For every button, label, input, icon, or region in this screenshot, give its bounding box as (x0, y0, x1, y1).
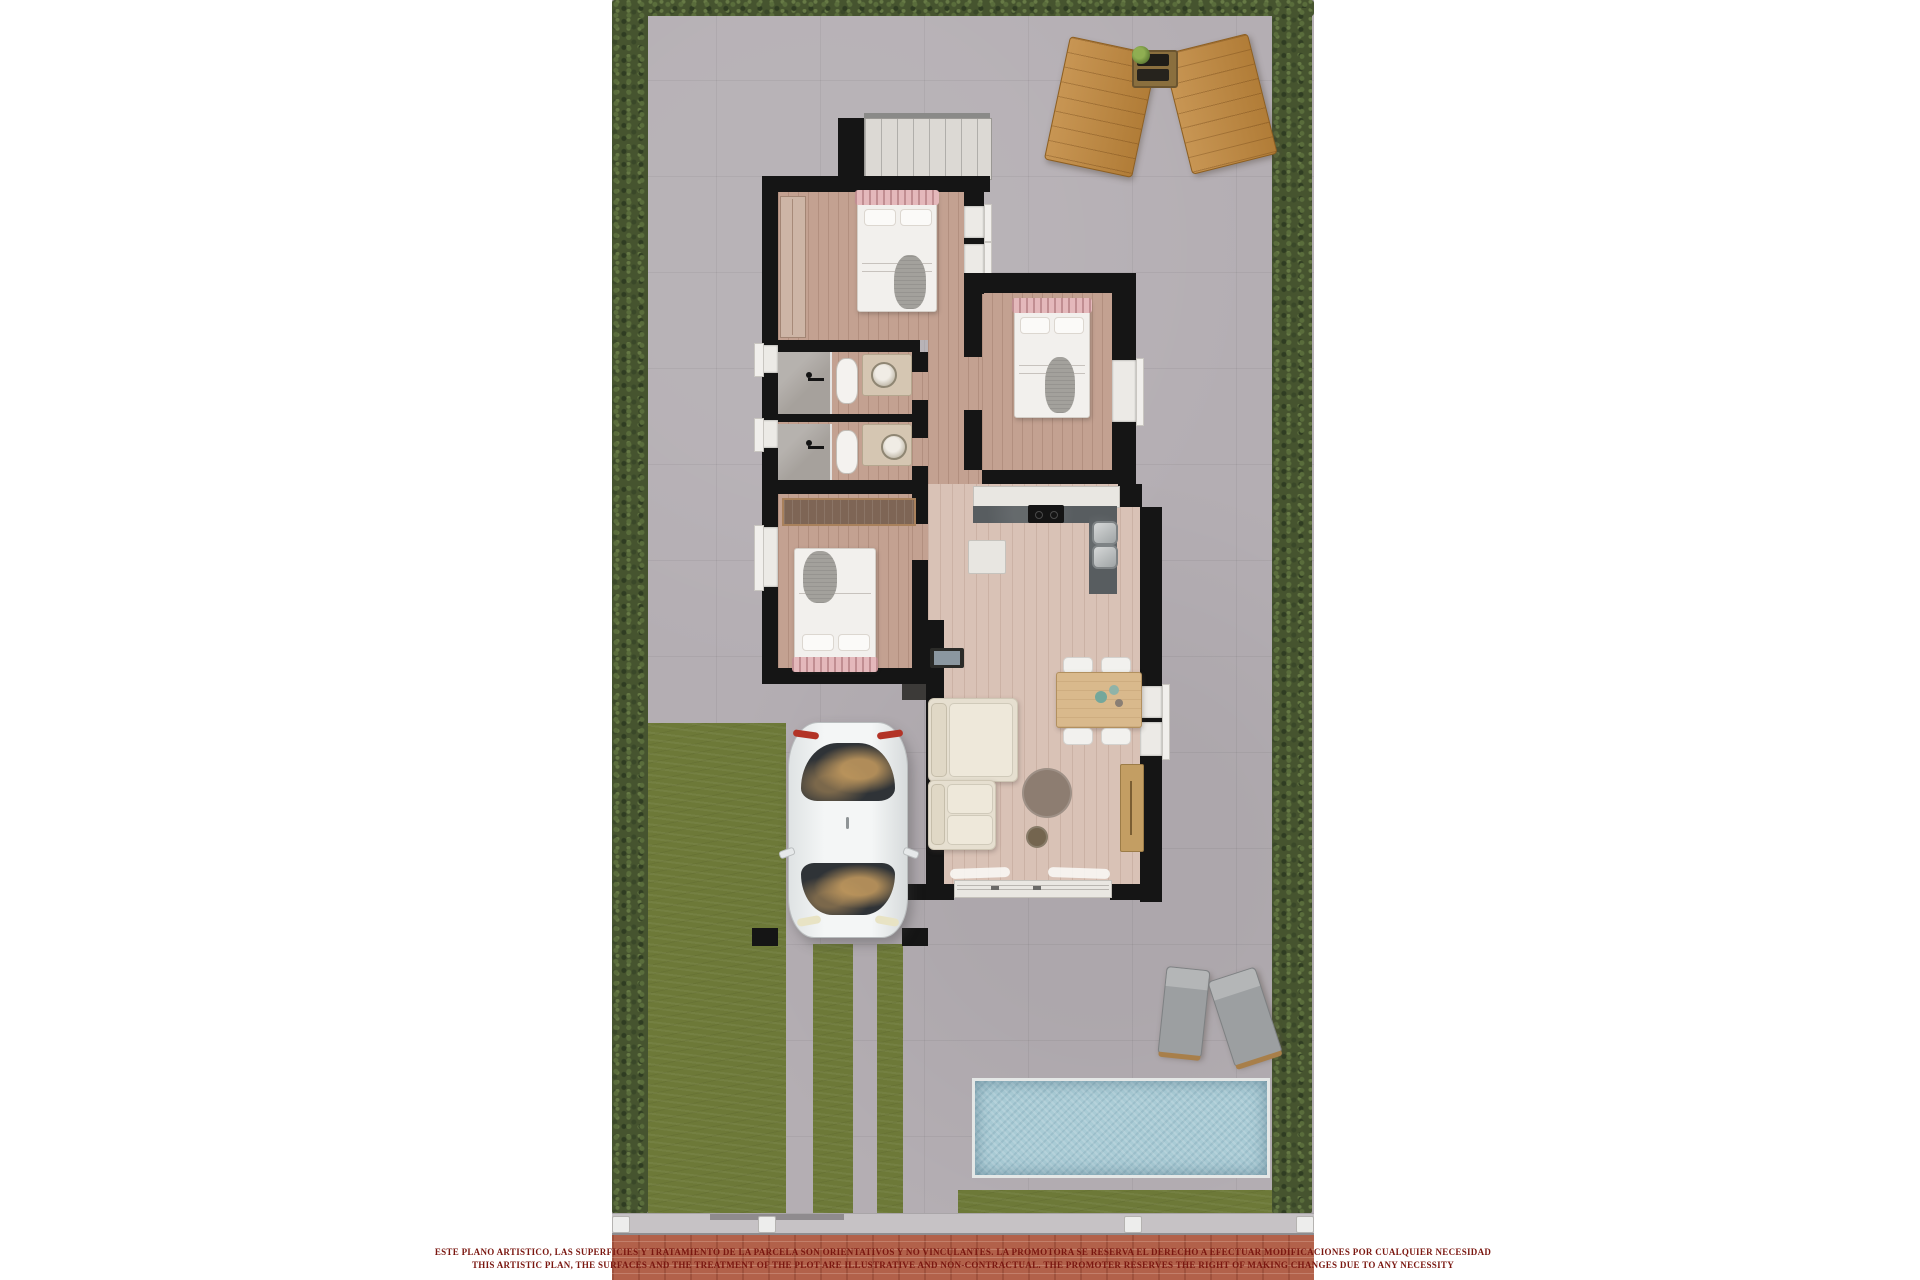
toilet-bathroom2 (836, 430, 858, 474)
vanity-bathroom1 (862, 354, 912, 396)
window-sill (984, 204, 992, 242)
vanity-bathroom2 (862, 424, 912, 466)
tv-sideboard (1120, 764, 1144, 852)
floor-plan-canvas: ESTE PLANO ARTISTICO, LAS SUPERFICIES Y … (0, 0, 1920, 1280)
bed-throw-blanket (1045, 357, 1075, 413)
window-living-east (1140, 686, 1162, 718)
window-bedroom2 (1112, 360, 1136, 422)
main-lawn (648, 723, 786, 1213)
cooktop-burner (1050, 511, 1058, 519)
disclaimer-banner: ESTE PLANO ARTISTICO, LAS SUPERFICIES Y … (612, 1233, 1314, 1280)
wall-living-south-right (1110, 884, 1162, 900)
shower-bathroom2 (778, 424, 832, 480)
toilet-bathroom1 (836, 358, 858, 404)
table-decor-bowl (1095, 691, 1107, 703)
fence-post (1296, 1216, 1314, 1233)
side-table-top (934, 651, 960, 665)
wardrobe-divider (792, 199, 793, 335)
door-bathroom2 (912, 438, 928, 466)
curtain (1048, 867, 1110, 879)
car-windshield (801, 863, 895, 915)
fence-post (758, 1216, 776, 1233)
bed-throw-blanket (803, 551, 837, 603)
kitchen-sink-basin (1092, 545, 1118, 569)
window-west-bedroom3 (762, 527, 778, 587)
table-decor-item (1115, 699, 1123, 707)
carport-wall-stub (902, 928, 928, 946)
round-rug (1022, 768, 1072, 818)
bed-bedroom1 (857, 192, 937, 312)
dining-chair (1063, 728, 1093, 745)
bed-pillow (864, 209, 896, 226)
hedge-left (612, 0, 648, 1214)
door-bathroom1 (912, 372, 928, 400)
carport-wall-stub (752, 928, 778, 946)
sink-basin (881, 434, 907, 460)
sofa-chaise (928, 698, 1018, 782)
disclaimer-line-spanish: ESTE PLANO ARTISTICO, LAS SUPERFICIES Y … (435, 1247, 1491, 1258)
sliding-door-sill (954, 880, 1112, 898)
curtain (950, 867, 1010, 879)
bed-pillow (900, 209, 932, 226)
window-west-bath2 (762, 420, 778, 448)
bed-bedroom3 (794, 548, 876, 670)
bed-throw-blanket (894, 255, 926, 309)
car-roof-antenna (846, 817, 849, 829)
wall-living-south-left (900, 884, 954, 900)
window-sill (754, 525, 764, 591)
wall-bedroom2-north (964, 273, 1136, 293)
table-decor-bowl (1109, 685, 1119, 695)
kitchen-sink-basin (1092, 521, 1118, 545)
fence-post (1124, 1216, 1142, 1233)
bed-pillow (1054, 317, 1084, 334)
dining-table (1056, 672, 1142, 728)
pool-lounger (1158, 966, 1211, 1058)
wall-bath-bedroom3-divider (778, 480, 920, 494)
cooktop (1028, 505, 1064, 523)
shower-head (806, 440, 812, 446)
lawn-strip-2 (877, 944, 903, 1213)
window-sill (754, 418, 764, 452)
kitchen-appliance (968, 540, 1006, 574)
window-west-bath1 (762, 345, 778, 373)
lounger-headrest (1166, 967, 1210, 990)
dining-chair (1101, 728, 1131, 745)
bed-pillow (838, 634, 870, 651)
entrance-stairs (864, 118, 992, 180)
car-rear-window (801, 743, 895, 801)
bed-footboard (792, 657, 878, 672)
hedge-right (1272, 8, 1312, 1214)
sink-basin (871, 362, 897, 388)
lawn-strip-1 (813, 944, 853, 1213)
pouf (1026, 826, 1048, 848)
wall-kitchen-north (982, 470, 1136, 484)
sofa-seat (928, 780, 996, 850)
corner-side-table (930, 648, 964, 668)
sideboard-handle (1130, 781, 1132, 835)
wall-kitchen-east-corner (1118, 484, 1142, 507)
window-bedroom1 (964, 206, 984, 238)
bed-pillow (1020, 317, 1050, 334)
closet-bedroom3 (782, 498, 916, 526)
stairs-side-wall (838, 118, 864, 178)
disclaimer-line-english: THIS ARTISTIC PLAN, THE SURFACES AND THE… (472, 1260, 1454, 1271)
wall-bedroom2-west-lower (964, 410, 982, 470)
shower-bathroom1 (778, 352, 832, 414)
door-handle (1033, 886, 1041, 890)
car-headlight (796, 915, 821, 927)
potted-plant (1132, 46, 1150, 64)
bed-headboard (855, 190, 939, 205)
fence-post (612, 1216, 630, 1233)
door-handle (991, 886, 999, 890)
shower-fixture (808, 446, 824, 449)
wall-bedroom1-bath-divider (778, 340, 920, 352)
outdoor-side-table (1132, 50, 1178, 88)
door-bedroom3 (912, 524, 928, 560)
shower-head (806, 372, 812, 378)
window-sill (754, 343, 764, 377)
wall-bedroom2-west-upper (964, 293, 982, 357)
window-sill (1162, 684, 1170, 760)
window-living-east (1140, 722, 1162, 756)
car-headlight (874, 915, 899, 927)
car-taillight (877, 729, 904, 740)
swimming-pool (972, 1078, 1270, 1178)
bed-bedroom2 (1014, 300, 1090, 418)
car-taillight (793, 729, 820, 740)
window-sill (1136, 358, 1144, 426)
hedge-top (612, 0, 1314, 16)
wall-bath-divider (778, 414, 920, 422)
car (788, 722, 908, 938)
bed-pillow (802, 634, 834, 651)
cooktop-burner (1035, 511, 1043, 519)
bed-headboard (1012, 298, 1092, 313)
table-slat (1137, 69, 1169, 81)
sidewalk-step (710, 1214, 844, 1220)
wardrobe-bedroom1 (780, 196, 806, 338)
shower-fixture (808, 378, 824, 381)
